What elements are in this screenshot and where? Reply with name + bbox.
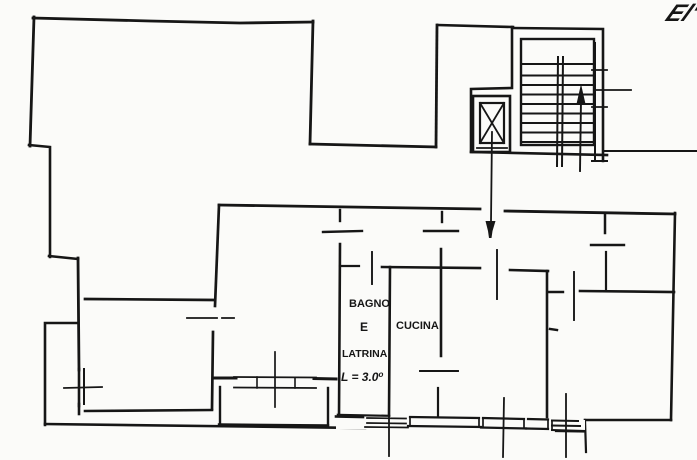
- svg-text:L = 3.0o: L = 3.0o: [341, 370, 383, 384]
- svg-text:LATRINA: LATRINA: [342, 348, 388, 360]
- svg-text:BAGNO: BAGNO: [349, 298, 390, 310]
- svg-text:CUCINA: CUCINA: [396, 320, 439, 332]
- svg-text:El′: El′: [661, 0, 697, 26]
- svg-text:E: E: [360, 320, 368, 334]
